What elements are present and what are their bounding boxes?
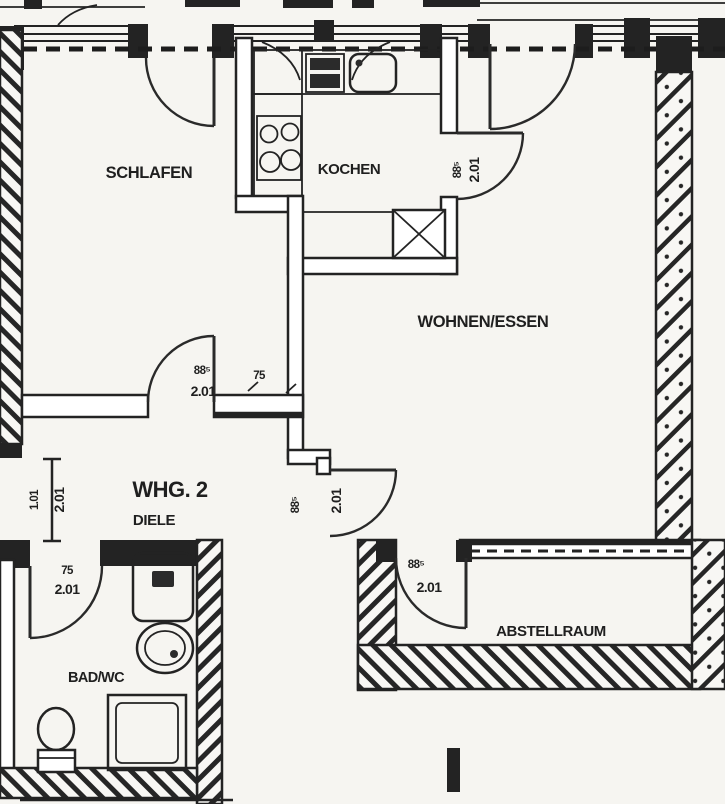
left-exterior-wall [0,30,22,458]
bath-south-wall [0,768,197,798]
cut-artifact [352,0,374,8]
kitchen-door-width: 88⁵ [452,162,464,179]
floorplan-drawing: SCHLAFEN [0,0,725,804]
cut-artifact [423,0,480,7]
storage-east-wall [692,540,725,689]
apartment-label: WHG. 2 [132,477,207,502]
living-room-label: WOHNEN/ESSEN [418,313,549,331]
door-jamb [317,458,330,474]
kitchen-west-wall [236,38,252,198]
storage-label: ABSTELLRAUM [496,623,606,640]
living-door-width: 88⁵ [290,497,302,514]
pier-width: 75 [253,370,266,382]
kitchen-door-height: 2.01 [466,157,482,183]
door-jamb [376,540,396,562]
cut-artifact [24,0,42,9]
bath-door-height: 2.01 [55,581,81,597]
right-exterior-wall [656,36,692,542]
wall-end-cap [0,444,22,458]
storage-south-wall [358,645,700,689]
service-shaft-icon [393,210,445,258]
floorplan-page: SCHLAFEN [0,0,725,804]
bedroom-door-height: 2.01 [191,383,217,399]
entrance-door-height: 2.01 [51,487,67,513]
kitchen-label: KOCHEN [318,161,381,178]
cut-wall-stub [447,748,460,792]
hallway-east-wall [288,196,303,458]
bath-west-wall [0,560,14,774]
cut-artifact [283,0,333,8]
entrance-door-width: 1.01 [29,489,41,510]
door-jamb [456,540,472,562]
bathroom-label: BAD/WC [68,670,125,686]
living-door-height: 2.01 [328,488,344,514]
bedroom-door-width: 88⁵ [194,365,211,377]
kitchen-east-wall-upper [441,38,457,133]
bath-door-width: 75 [61,565,74,577]
stairwell [447,748,460,792]
bedroom-label: SCHLAFEN [106,164,193,182]
wall-end-cap [656,36,692,72]
cut-artifact [185,0,240,7]
storage-door-height: 2.01 [417,579,443,595]
hallway-label: DIELE [133,512,176,529]
stairwell-west-wall [197,540,222,804]
storage-door-width: 88⁵ [408,559,425,571]
bedroom-south-wall-left [22,395,148,417]
kitchen-south-wall [288,258,457,274]
